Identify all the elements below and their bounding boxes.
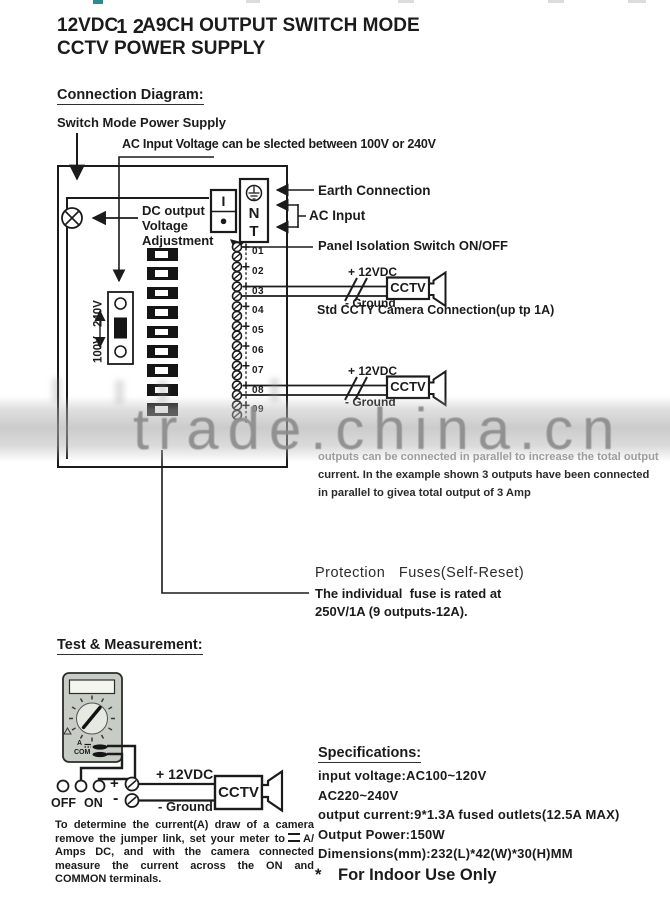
fuse-rating-line1: The individual fuse is rated at — [315, 587, 501, 602]
spec-line: AC220~240V — [318, 789, 398, 804]
dc-adjust-label: DC output Voltage Adjustment — [142, 203, 214, 248]
switch-off-dot: ● — [211, 214, 236, 229]
product-diagram-page: 12VDC1 2A9CH OUTPUT SWITCH MODE CCTV POW… — [0, 0, 670, 899]
fuse — [147, 364, 178, 377]
panel-switch-label: Panel Isolation Switch ON/OFF — [318, 239, 508, 254]
terminal-number: 05 — [252, 325, 264, 337]
indoor-note-star: * — [315, 866, 321, 885]
title-mid: 1 2 — [116, 16, 144, 38]
indoor-note: For Indoor Use Only — [338, 866, 497, 885]
wire-plus-label: + 12VDC — [348, 266, 397, 280]
test-note: To determine the current(A) draw of a ca… — [55, 819, 314, 887]
spec-line: input voltage:AC100~120V — [318, 769, 486, 784]
fuse — [147, 248, 178, 261]
title-line2: CCTV POWER SUPPLY — [57, 37, 420, 60]
terminal-n-label: N — [240, 205, 268, 222]
selector-100v-label: 100V — [92, 329, 105, 371]
terminal-number: 02 — [252, 266, 264, 278]
earth-connection-label: Earth Connection — [318, 183, 431, 199]
terminal-t-label: T — [240, 223, 268, 240]
fuse — [147, 326, 178, 339]
terminal-number: 07 — [252, 365, 264, 377]
fuse — [147, 267, 178, 280]
psu-label: Switch Mode Power Supply — [57, 116, 226, 131]
spec-line: Output Power:150W — [318, 828, 445, 843]
dc-adjust-knob-icon — [62, 208, 82, 228]
terminal-number: 04 — [252, 305, 264, 317]
ac-voltage-note: AC Input Voltage can be slected between … — [122, 137, 436, 151]
title-pre: 12VDC — [57, 15, 118, 36]
section-connection-heading: Connection Diagram: — [57, 87, 204, 104]
test-wire-minus-label: - Ground — [158, 800, 213, 815]
camera-note: Std CCTY Camera Connection(up tp 1A) — [317, 303, 554, 317]
fuse — [147, 345, 178, 358]
spec-line: output current:9*1.3A fused outlets(12.5… — [318, 808, 620, 823]
section-test-heading: Test & Measurement: — [57, 637, 203, 654]
browser-edge-artifact — [398, 0, 414, 3]
ac-input-label: AC Input — [309, 208, 365, 224]
browser-edge-artifact — [628, 0, 646, 3]
test-wire-plus-label: + 12VDC — [156, 766, 213, 782]
fuse — [147, 306, 178, 319]
terminal-number: 03 — [252, 286, 264, 298]
terminal-number: 08 — [252, 385, 264, 397]
fuse — [147, 287, 178, 300]
browser-edge-artifact — [548, 0, 564, 3]
multimeter-icon — [63, 673, 122, 762]
parallel-note-line: current. In the example shown 3 outputs … — [318, 469, 649, 482]
terminal-number: 01 — [252, 246, 264, 258]
section-specs-heading: Specifications: — [318, 745, 421, 762]
cctv-box-label: CCTV — [387, 380, 429, 395]
cctv-box-label: CCTV — [387, 281, 429, 296]
browser-edge-artifact-teal — [93, 0, 103, 4]
page-title: 12VDC1 2A9CH OUTPUT SWITCH MODE CCTV POW… — [57, 14, 420, 60]
browser-edge-artifact — [246, 0, 260, 3]
terminal-number: 06 — [252, 345, 264, 357]
watermark: trade.china.cn — [133, 401, 623, 459]
parallel-note-line: in parallel to givea total output of 3 A… — [318, 487, 531, 500]
wire-plus-label: + 12VDC — [348, 365, 397, 379]
fuse-title: Protection Fuses(Self-Reset) — [315, 565, 524, 582]
off-label: OFF — [51, 796, 76, 810]
test-cctv-label: CCTV — [215, 784, 262, 801]
title-post: A9CH OUTPUT SWITCH MODE — [142, 15, 420, 36]
meter-a-label: A — [77, 740, 82, 748]
on-label: ON — [84, 796, 103, 810]
spec-line: Dimensions(mm):232(L)*42(W)*30(H)MM — [318, 847, 573, 862]
meter-com-label: COM — [74, 749, 90, 757]
dc-current-icon — [288, 833, 300, 842]
fuse-rating-line2: 250V/1A (9 outputs-12A). — [315, 605, 468, 620]
switch-on-label: I — [211, 193, 236, 209]
minus-label: - — [113, 790, 118, 808]
